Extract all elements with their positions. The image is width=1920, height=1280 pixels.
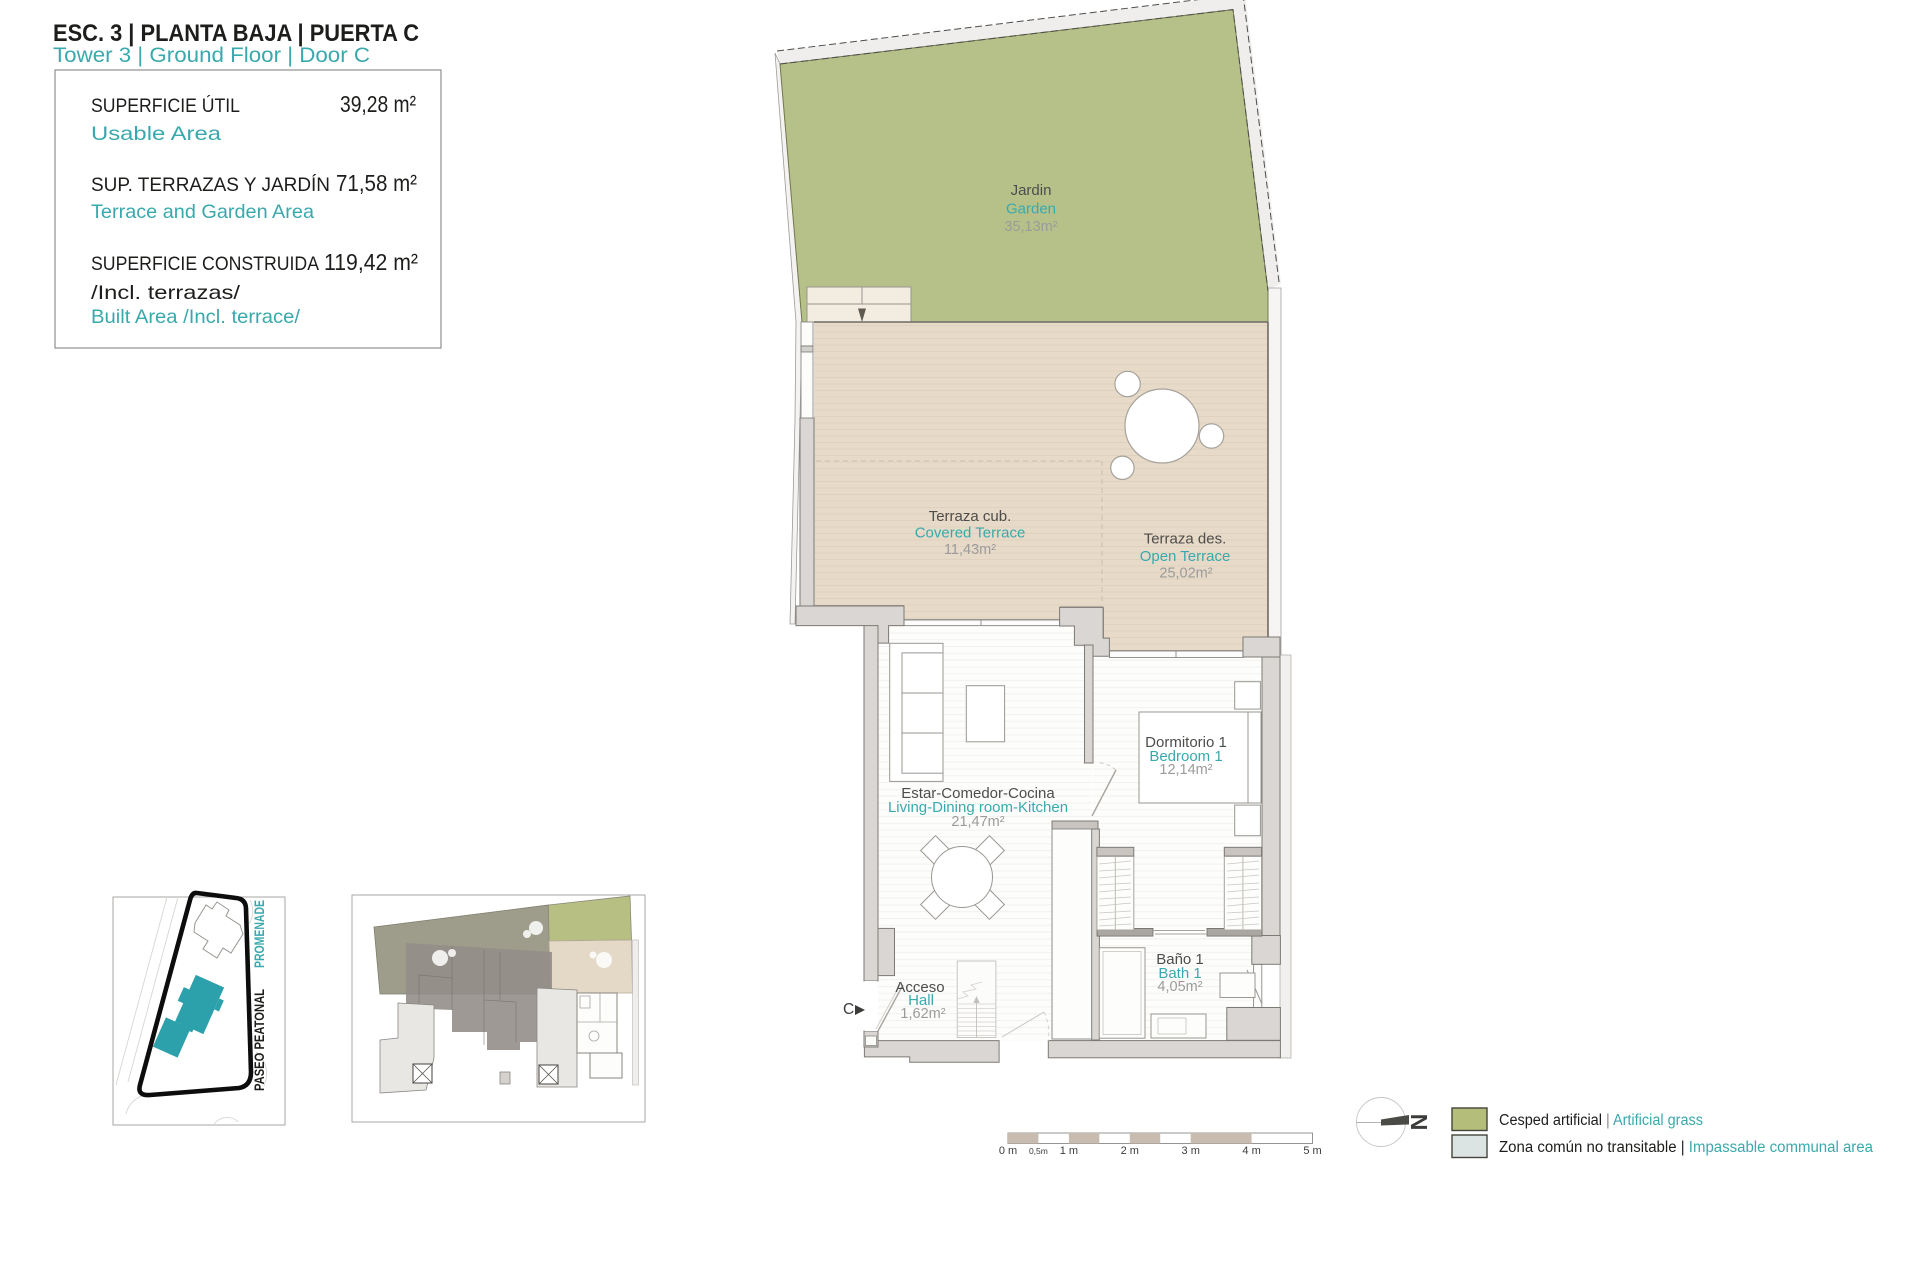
svg-text:Terraza cub.: Terraza cub.	[929, 508, 1012, 525]
svg-text:21,47m²: 21,47m²	[951, 814, 1004, 830]
svg-text:4 m: 4 m	[1242, 1145, 1260, 1157]
svg-text:5 m: 5 m	[1303, 1145, 1321, 1157]
svg-text:71,58 m²: 71,58 m²	[336, 170, 417, 196]
svg-text:25,02m²: 25,02m²	[1159, 566, 1212, 582]
svg-text:ESC. 3 | PLANTA BAJA | PUERTA: ESC. 3 | PLANTA BAJA | PUERTA C	[53, 20, 419, 47]
svg-text:3 m: 3 m	[1182, 1145, 1200, 1157]
svg-text:1 m: 1 m	[1060, 1145, 1078, 1157]
svg-text:119,42 m²: 119,42 m²	[324, 249, 418, 275]
svg-text:12,14m²: 12,14m²	[1159, 762, 1212, 778]
svg-text:Usable Area: Usable Area	[91, 123, 221, 145]
svg-text:SUPERFICIE CONSTRUIDA: SUPERFICIE CONSTRUIDA	[91, 253, 319, 275]
svg-text:Jardin: Jardin	[1011, 182, 1052, 199]
svg-text:4,05m²: 4,05m²	[1157, 979, 1202, 995]
svg-text:Built Area /Incl. terrace/: Built Area /Incl. terrace/	[91, 306, 301, 328]
svg-text:PROMENADE: PROMENADE	[252, 900, 267, 968]
svg-text:SUPERFICIE ÚTIL: SUPERFICIE ÚTIL	[91, 94, 240, 117]
svg-text:Garden: Garden	[1006, 201, 1056, 218]
svg-text:1,62m²: 1,62m²	[900, 1006, 945, 1022]
svg-text:N: N	[1406, 1114, 1432, 1131]
svg-text:35,13m²: 35,13m²	[1004, 219, 1057, 235]
svg-text:C: C	[843, 1001, 854, 1018]
svg-text:Cesped artificial | Artificial: Cesped artificial | Artificial grass	[1499, 1112, 1703, 1129]
svg-text:SUP. TERRAZAS Y JARDÍN: SUP. TERRAZAS Y JARDÍN	[91, 173, 330, 196]
svg-text:PASEO PEATONAL: PASEO PEATONAL	[252, 989, 267, 1091]
svg-text:Terraza des.: Terraza des.	[1144, 531, 1227, 548]
svg-text:0 m: 0 m	[999, 1145, 1017, 1157]
svg-text:11,43m²: 11,43m²	[944, 542, 996, 558]
svg-text:Terrace and Garden Area: Terrace and Garden Area	[91, 201, 314, 223]
svg-text:Tower 3 | Ground Floor | Door: Tower 3 | Ground Floor | Door C	[53, 44, 370, 67]
svg-text:Covered Terrace: Covered Terrace	[915, 525, 1026, 542]
svg-text:39,28 m²: 39,28 m²	[340, 91, 416, 117]
svg-text:/Incl. terrazas/: /Incl. terrazas/	[91, 282, 241, 304]
svg-text:Open Terrace: Open Terrace	[1140, 548, 1231, 565]
svg-text:Zona común no transitable | Im: Zona común no transitable | Impassable c…	[1499, 1139, 1873, 1156]
svg-text:2 m: 2 m	[1121, 1145, 1139, 1157]
svg-text:0,5m: 0,5m	[1029, 1146, 1048, 1156]
